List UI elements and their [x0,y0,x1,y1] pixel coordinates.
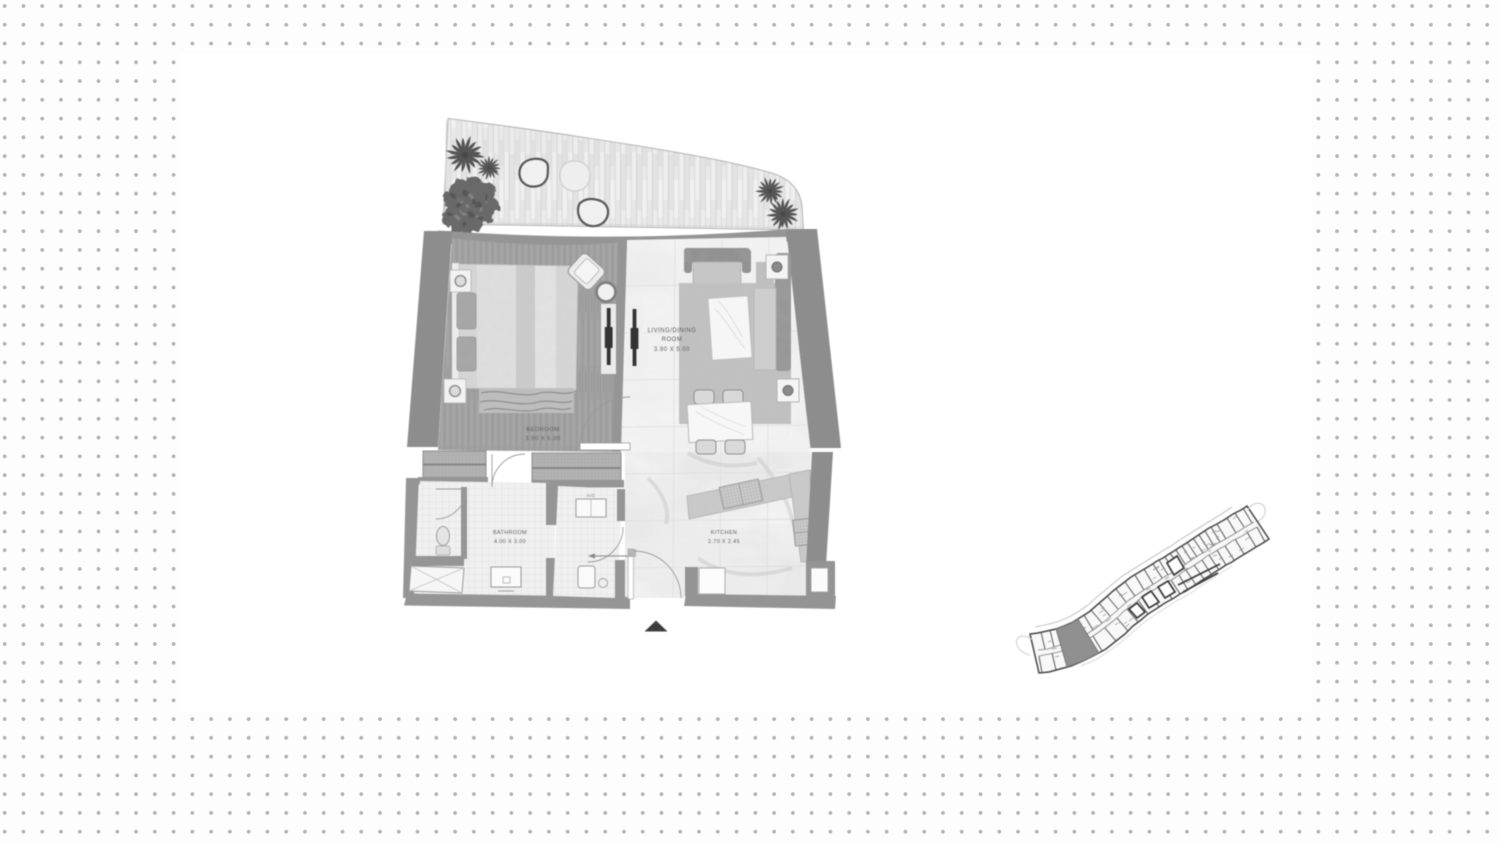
svg-text:KITCHEN: KITCHEN [711,530,737,536]
svg-text:3.90 X 5.00: 3.90 X 5.00 [525,436,560,442]
svg-text:2.70 X 2.45: 2.70 X 2.45 [708,539,740,545]
svg-text:BATHROOM: BATHROOM [493,530,527,536]
svg-text:LIVING/DINING: LIVING/DINING [648,328,697,334]
svg-text:3.90 X 5.00: 3.90 X 5.00 [654,347,690,353]
svg-text:4.00 X 3.00: 4.00 X 3.00 [494,539,526,545]
svg-text:ROOM: ROOM [662,337,683,343]
svg-text:A/C: A/C [587,493,596,498]
svg-text:BEDROOM: BEDROOM [526,427,559,433]
